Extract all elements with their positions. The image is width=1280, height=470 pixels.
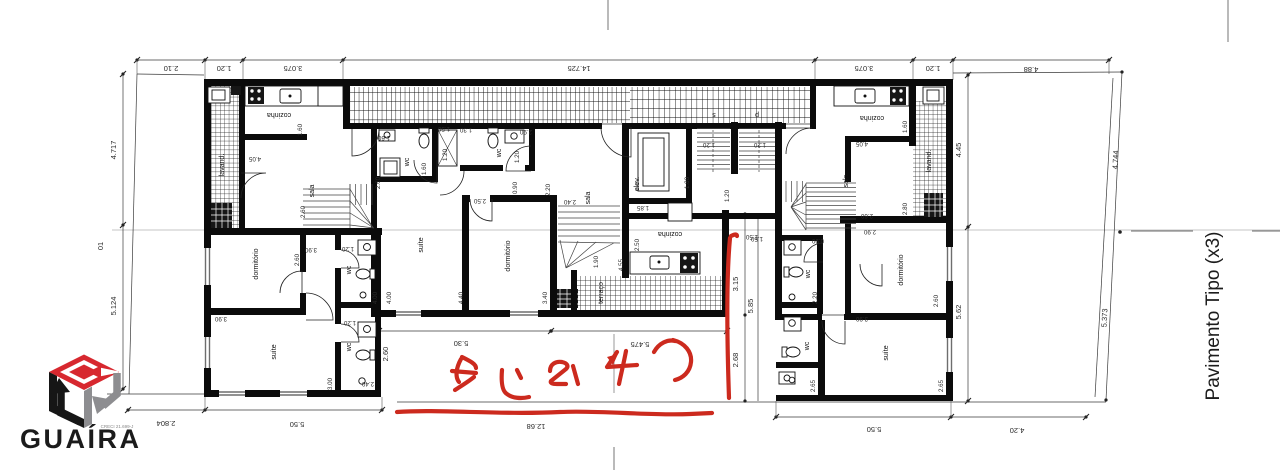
svg-text:5.30: 5.30: [454, 339, 469, 348]
svg-text:5.124: 5.124: [109, 297, 118, 316]
svg-text:2.50: 2.50: [634, 238, 641, 251]
svg-text:2.804: 2.804: [157, 419, 176, 428]
svg-text:2.60: 2.60: [860, 212, 873, 219]
svg-text:1.90: 1.90: [593, 255, 600, 268]
svg-text:1.20: 1.20: [702, 141, 715, 148]
svg-text:1.50: 1.50: [745, 233, 758, 240]
svg-text:dormitório: dormitório: [505, 240, 512, 271]
svg-text:1.20: 1.20: [341, 245, 354, 252]
svg-text:2.80: 2.80: [902, 202, 909, 215]
svg-text:1.60: 1.60: [377, 134, 390, 141]
svg-text:2.65: 2.65: [810, 379, 817, 392]
svg-text:suíte: suíte: [271, 344, 278, 359]
svg-text:1.20: 1.20: [343, 319, 356, 326]
svg-text:cozinha: cozinha: [267, 111, 291, 118]
svg-text:sala: sala: [309, 184, 316, 197]
svg-text:2.90: 2.90: [863, 228, 876, 235]
svg-text:GUAÍRA: GUAÍRA: [20, 423, 142, 454]
svg-text:p: p: [755, 111, 759, 118]
svg-text:terraço: terraço: [598, 282, 605, 304]
svg-text:suíte: suíte: [883, 345, 890, 360]
svg-text:3.075: 3.075: [284, 64, 303, 73]
svg-text:3.90: 3.90: [855, 315, 868, 322]
svg-text:wc: wc: [805, 269, 812, 279]
svg-text:2.40: 2.40: [563, 198, 576, 205]
svg-text:wc: wc: [804, 341, 811, 351]
svg-text:12.68: 12.68: [527, 422, 546, 431]
svg-text:2.60: 2.60: [300, 205, 307, 218]
svg-text:4.40: 4.40: [458, 291, 465, 304]
svg-text:3.90: 3.90: [304, 246, 317, 253]
svg-text:dormitório: dormitório: [253, 248, 260, 279]
svg-text:1.60: 1.60: [297, 123, 304, 136]
svg-text:2.40: 2.40: [361, 380, 374, 387]
svg-text:1.50: 1.50: [437, 125, 450, 132]
svg-text:1.80: 1.80: [684, 176, 691, 189]
svg-text:1.60: 1.60: [902, 120, 909, 133]
svg-text:lavand.: lavand.: [926, 150, 933, 173]
svg-text:wc: wc: [404, 157, 411, 167]
svg-text:2.60: 2.60: [294, 253, 301, 266]
svg-text:2.90: 2.90: [519, 128, 532, 135]
svg-text:suíte: suíte: [418, 237, 425, 252]
svg-text:4.717: 4.717: [109, 141, 118, 160]
svg-text:5.50: 5.50: [867, 425, 882, 434]
svg-text:1.30: 1.30: [459, 126, 472, 133]
svg-text:5.85: 5.85: [746, 299, 755, 314]
svg-text:dormitório: dormitório: [898, 254, 905, 285]
svg-text:5.475: 5.475: [631, 340, 650, 349]
svg-text:4.05: 4.05: [248, 155, 261, 162]
svg-text:4.55: 4.55: [618, 258, 625, 271]
svg-text:1.60: 1.60: [421, 162, 428, 175]
svg-text:3.00: 3.00: [327, 377, 334, 390]
svg-text:cozinha: cozinha: [860, 114, 884, 121]
svg-text:4.00: 4.00: [386, 291, 393, 304]
svg-text:0.90: 0.90: [811, 237, 824, 244]
svg-text:lavand.: lavand.: [219, 154, 226, 177]
svg-text:2.20: 2.20: [812, 291, 819, 304]
svg-text:5.62: 5.62: [954, 305, 963, 320]
svg-text:4.45: 4.45: [954, 143, 963, 158]
svg-text:14.725: 14.725: [568, 64, 591, 73]
svg-text:3.075: 3.075: [855, 64, 874, 73]
svg-text:1.20: 1.20: [926, 64, 941, 73]
svg-text:4.744: 4.744: [1111, 150, 1121, 169]
svg-text:wc: wc: [496, 148, 503, 158]
svg-text:4.00: 4.00: [372, 291, 379, 304]
svg-text:sala: sala: [585, 191, 592, 204]
svg-text:1.20: 1.20: [217, 64, 232, 73]
svg-text:elev.: elev.: [634, 177, 641, 191]
svg-text:3.40: 3.40: [542, 291, 549, 304]
svg-text:2.50: 2.50: [473, 197, 486, 204]
svg-text:2.20: 2.20: [545, 183, 552, 196]
svg-text:1.85: 1.85: [636, 204, 649, 211]
svg-text:3.90: 3.90: [214, 315, 227, 322]
svg-text:2.60: 2.60: [933, 294, 940, 307]
svg-text:2.68: 2.68: [731, 353, 740, 368]
svg-text:5.50: 5.50: [290, 420, 305, 429]
svg-text:1.20: 1.20: [514, 150, 521, 163]
svg-text:4.05: 4.05: [855, 140, 868, 147]
svg-text:wc: wc: [346, 342, 353, 352]
svg-text:cozinha: cozinha: [658, 230, 682, 237]
svg-text:3.15: 3.15: [731, 277, 740, 292]
svg-text:Pavimento Tipo (x3): Pavimento Tipo (x3): [1203, 232, 1224, 401]
svg-text:2.10: 2.10: [164, 64, 179, 73]
svg-text:0.90: 0.90: [512, 181, 519, 194]
svg-text:s: s: [712, 111, 716, 118]
svg-text:1.20: 1.20: [442, 148, 449, 161]
svg-text:5.373: 5.373: [1100, 308, 1110, 327]
svg-text:2.60: 2.60: [381, 347, 390, 362]
svg-text:1.20: 1.20: [753, 141, 766, 148]
svg-text:sala: sala: [843, 174, 850, 187]
svg-text:4.20: 4.20: [1010, 426, 1025, 435]
svg-text:1.20: 1.20: [724, 189, 731, 202]
svg-text:2.65: 2.65: [938, 379, 945, 392]
svg-text:01: 01: [96, 242, 105, 250]
svg-text:wc: wc: [346, 265, 353, 275]
svg-text:2.60: 2.60: [375, 176, 382, 189]
